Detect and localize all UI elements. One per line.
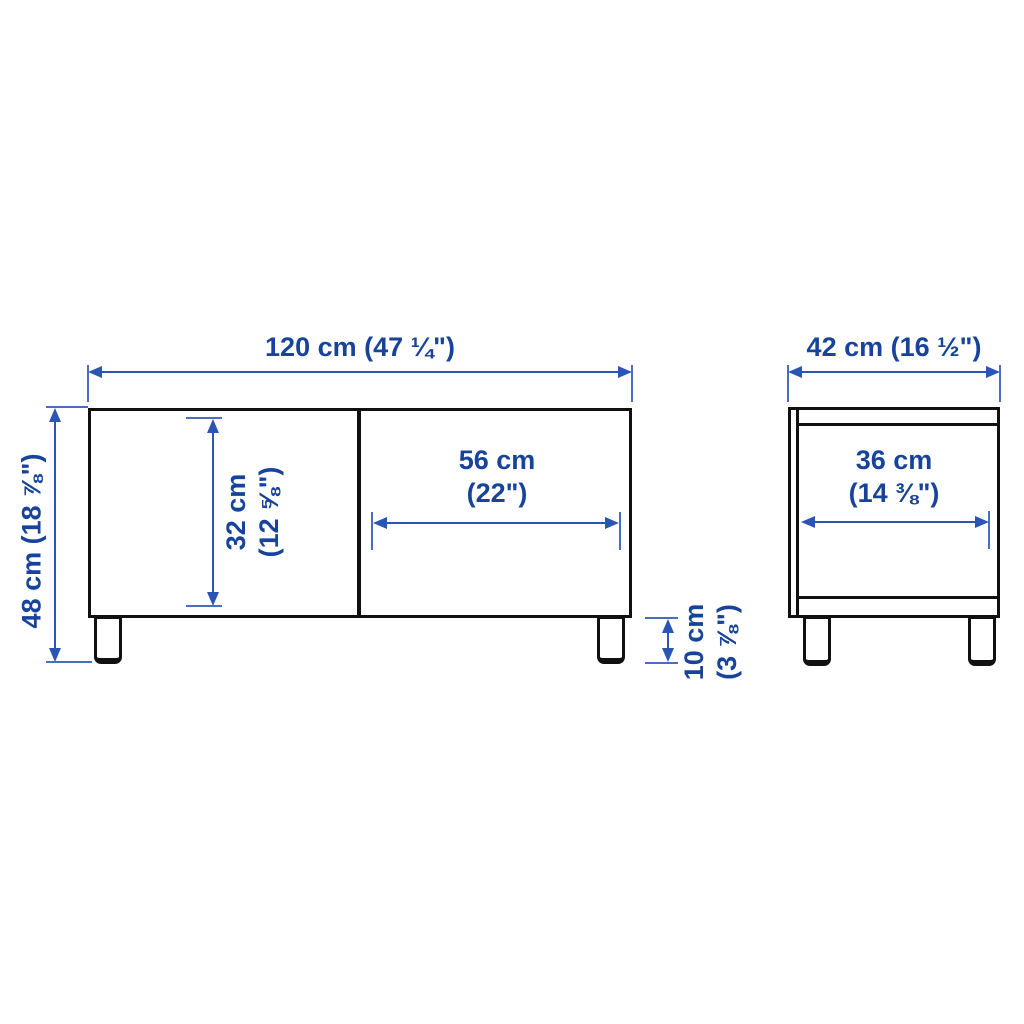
dim-leg-height-label: 10 cm (3 ⅞") xyxy=(678,604,744,681)
arrowhead-right-icon xyxy=(975,516,989,528)
front-left-leg xyxy=(94,616,122,664)
dimension-line xyxy=(800,371,988,373)
dimension-line xyxy=(100,371,620,373)
dim-inner-depth-label: 36 cm (14 ⅜") xyxy=(849,444,940,510)
arrowhead-down-icon xyxy=(49,648,61,662)
arrowhead-down-icon xyxy=(662,648,674,662)
dim-inner-depth-cm: 36 cm xyxy=(849,444,940,477)
extension-line xyxy=(619,512,621,550)
dim-leg-height-in: (3 ⅞") xyxy=(711,604,744,681)
dim-overall-width-label: 120 cm (47 ¼") xyxy=(265,331,455,364)
side-panel-outline xyxy=(796,407,1000,618)
arrowhead-up-icon xyxy=(207,419,219,433)
arrowhead-down-icon xyxy=(207,592,219,606)
dimension-line xyxy=(813,521,977,523)
dim-door-width-in: (22") xyxy=(459,477,536,510)
arrowhead-right-icon xyxy=(618,366,632,378)
extension-line xyxy=(645,662,678,664)
dim-inner-height-label: 32 cm (12 ⅝") xyxy=(220,467,286,558)
dim-inner-height-in: (12 ⅝") xyxy=(253,467,286,558)
arrowhead-left-icon xyxy=(88,366,102,378)
side-bottom-rail-line xyxy=(799,596,997,599)
side-back-leg xyxy=(968,616,996,666)
dimension-line xyxy=(54,420,56,648)
arrowhead-right-icon xyxy=(605,517,619,529)
arrowhead-left-icon xyxy=(373,517,387,529)
dim-door-width-label: 56 cm (22") xyxy=(459,444,536,510)
arrowhead-left-icon xyxy=(801,516,815,528)
dim-inner-depth-in: (14 ⅜") xyxy=(849,477,940,510)
dimension-diagram: 120 cm (47 ¼") 42 cm (16 ½") 48 cm (18 ⅞… xyxy=(0,0,1024,1024)
arrowhead-right-icon xyxy=(986,366,1000,378)
arrowhead-up-icon xyxy=(662,619,674,633)
dim-door-width-cm: 56 cm xyxy=(459,444,536,477)
arrowhead-up-icon xyxy=(49,408,61,422)
dim-leg-height-cm: 10 cm xyxy=(678,604,711,681)
front-right-leg xyxy=(597,616,625,664)
side-top-rail-line xyxy=(799,423,997,426)
dim-overall-height-label: 48 cm (18 ⅞") xyxy=(16,454,49,629)
arrowhead-left-icon xyxy=(788,366,802,378)
dimension-line xyxy=(385,522,607,524)
dimension-line xyxy=(212,430,214,594)
dim-inner-height-cm: 32 cm xyxy=(220,467,253,558)
front-door-divider xyxy=(357,411,361,615)
side-front-leg xyxy=(803,616,831,666)
dim-overall-depth-label: 42 cm (16 ½") xyxy=(807,331,982,364)
